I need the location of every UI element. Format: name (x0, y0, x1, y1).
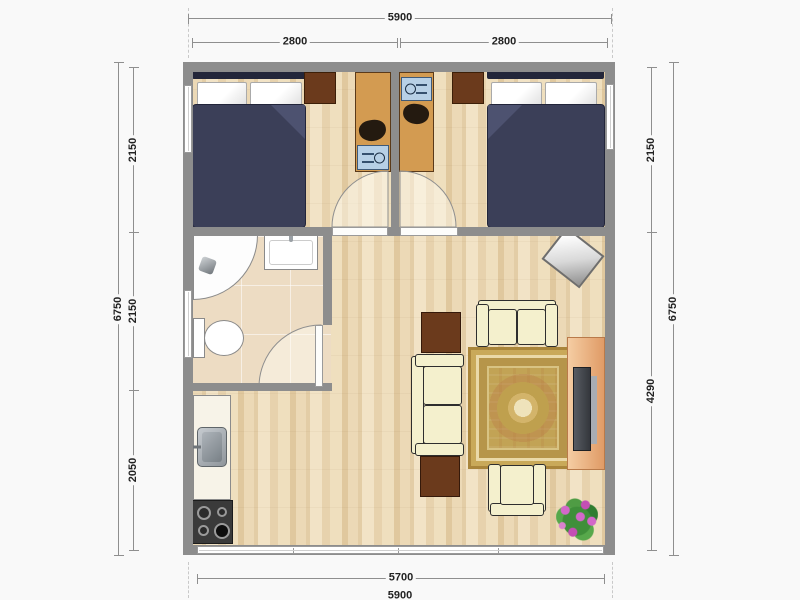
extension-line (188, 562, 189, 598)
coffee-table-lower (420, 456, 460, 497)
sofa-top (476, 300, 558, 347)
sink-basin (202, 432, 222, 462)
window-bedroom-left (184, 85, 192, 153)
dim-left-mid: 2150 (127, 296, 139, 326)
tv (573, 367, 591, 451)
burner-icon (214, 523, 230, 539)
sofa-cushion (488, 309, 517, 345)
dim-top-total: 5900 (385, 12, 415, 24)
wall-separator-left (192, 227, 332, 236)
door-leaf-bedroom-right (400, 227, 458, 236)
gas-stove (191, 500, 233, 544)
dim-right-bottom: 4290 (645, 376, 657, 406)
wall-separator-mid (388, 227, 400, 236)
monitor-icon (374, 152, 385, 163)
armchair-cushion (500, 465, 534, 505)
sofa-armrest (545, 304, 558, 347)
oriental-rug (468, 347, 578, 469)
basin (269, 240, 313, 265)
door-leaf-bedroom-left (332, 227, 388, 236)
window-sliding-bottom (197, 546, 604, 554)
burner-icon (197, 506, 211, 520)
dim-top-left: 2800 (280, 36, 310, 48)
window-divider (498, 548, 499, 553)
monitor-icon (405, 84, 416, 95)
keyboard-icon (416, 92, 427, 94)
dim-top-right: 2800 (489, 36, 519, 48)
faucet-icon (192, 446, 201, 449)
nightstand-right (452, 72, 484, 104)
window-divider (293, 548, 294, 553)
floor-plan-canvas: 5900 2800 2800 6750 2150 2150 2050 2150 … (0, 0, 800, 600)
window-bedroom-right (606, 84, 614, 150)
burner-icon (198, 525, 209, 536)
flower-plant (556, 497, 598, 541)
kitchen-sink (197, 427, 227, 467)
dim-tick (129, 232, 139, 233)
bed-duvet-right (487, 104, 605, 228)
duvet-fold (271, 105, 305, 139)
dim-left-bottom: 2050 (127, 455, 139, 485)
dim-bottom-outer: 5900 (385, 590, 415, 600)
dim-tick (129, 390, 139, 391)
dim-left-top: 2150 (127, 135, 139, 165)
dim-right-outer: 6750 (667, 294, 679, 324)
door-leaf-bathroom (315, 325, 323, 387)
shower-head-icon (198, 256, 217, 275)
wall-top (183, 62, 615, 72)
duvet-fold (488, 105, 522, 139)
extension-line (612, 562, 613, 598)
keyboard-icon (362, 161, 374, 163)
toilet-bowl (204, 320, 244, 356)
armchair (488, 462, 546, 516)
keyboard-icon (416, 84, 427, 86)
tv-stand (591, 376, 597, 444)
dim-right-top: 2150 (645, 135, 657, 165)
washbasin (264, 234, 318, 270)
window-bathroom (184, 290, 192, 358)
window-divider (398, 548, 399, 553)
sofa-cushion (423, 405, 462, 444)
extension-line (612, 8, 613, 58)
computer-right (401, 77, 432, 101)
dim-bottom-inner: 5700 (386, 572, 416, 584)
keyboard-icon (362, 153, 374, 155)
wall-bathroom-right (323, 236, 332, 325)
sofa-armrest (415, 443, 464, 456)
coffee-table-upper (421, 312, 461, 353)
nightstand-left (304, 72, 336, 104)
dim-tick (647, 232, 657, 233)
computer-left (357, 145, 389, 170)
burner-icon (217, 507, 227, 517)
sofa-left (411, 354, 464, 456)
sofa-cushion (517, 309, 546, 345)
wall-bathroom-bottom (192, 383, 332, 391)
bed-duvet-left (192, 104, 306, 228)
dim-left-outer: 6750 (112, 294, 124, 324)
wall-between-bedrooms (391, 72, 399, 236)
wall-separator-right (458, 227, 606, 236)
sofa-cushion (423, 366, 462, 405)
